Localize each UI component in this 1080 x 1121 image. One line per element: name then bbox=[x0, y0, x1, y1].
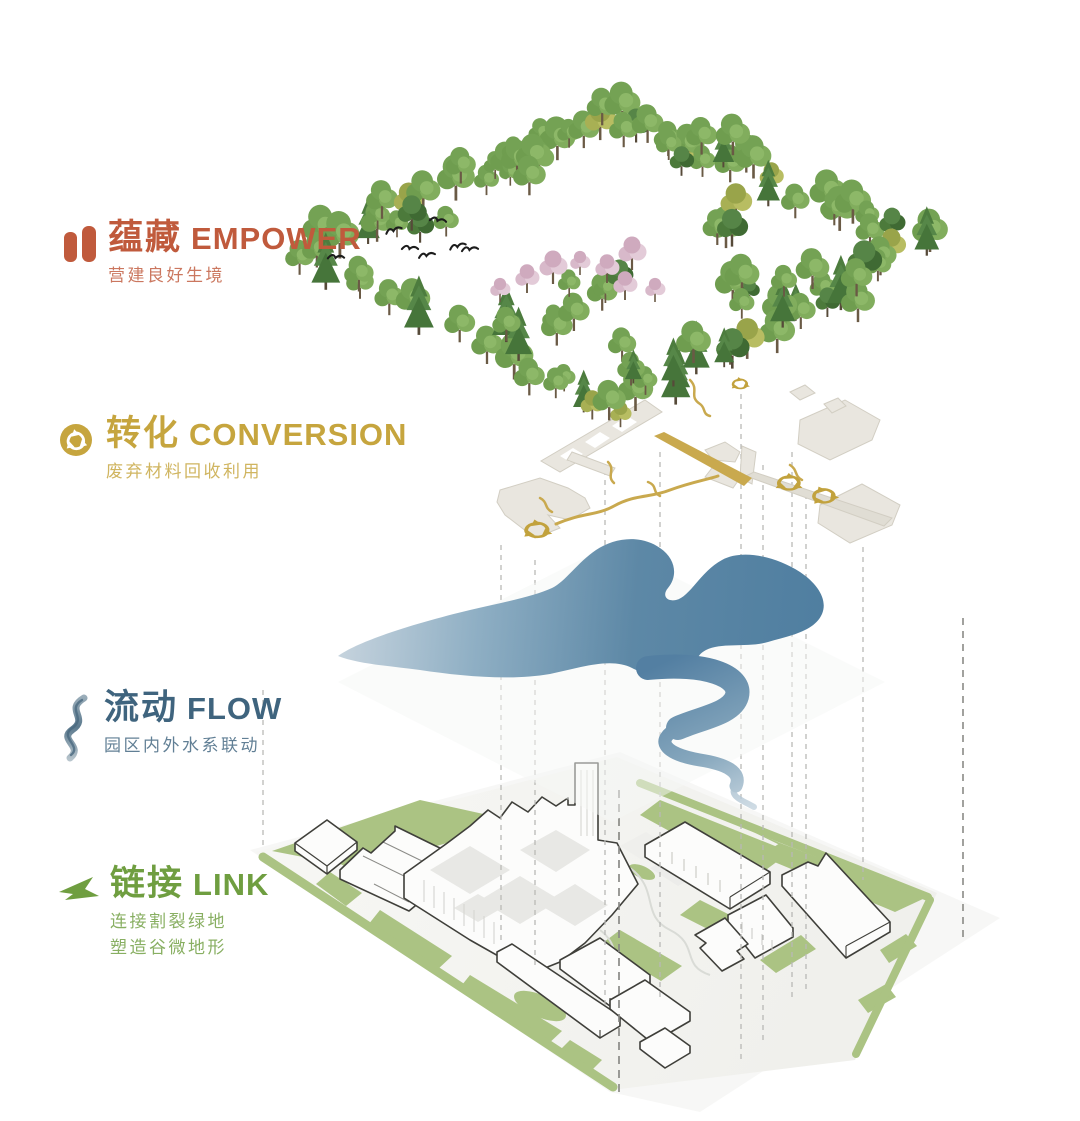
layer-title-en: LINK bbox=[193, 869, 269, 900]
stone-fragments bbox=[497, 385, 900, 543]
layer-subtitle: 废弃材料回收利用 bbox=[106, 459, 407, 485]
layer-title-en: FLOW bbox=[187, 693, 282, 724]
layer-title-en: CONVERSION bbox=[189, 419, 407, 450]
stream-icon bbox=[52, 694, 94, 762]
seeds-icon bbox=[64, 224, 98, 264]
layer-title: 流动 FLOW bbox=[104, 690, 282, 725]
layer-label-flow: 流动 FLOW 园区内外水系联动 bbox=[52, 690, 282, 762]
layer-title-en: EMPOWER bbox=[191, 223, 362, 254]
water-flow-layer bbox=[338, 539, 885, 822]
layer-title-zh: 流动 bbox=[104, 690, 178, 725]
habitat-trees-layer bbox=[285, 82, 948, 428]
gold-ramp-band bbox=[654, 432, 752, 486]
layer-title-zh: 链接 bbox=[110, 866, 184, 901]
layer-title-zh: 蕴藏 bbox=[108, 220, 182, 255]
materials-conversion-layer bbox=[497, 377, 900, 543]
exploded-axonometric-diagram: 蕴藏 EMPOWER 营建良好生境 转化 CONVERSION 废弃材料回收利用… bbox=[0, 0, 1080, 1121]
layer-label-link: 链接 LINK 连接割裂绿地 塑造谷微地形 bbox=[58, 866, 269, 962]
recycle-icon bbox=[56, 420, 96, 460]
layer-subtitle: 营建良好生境 bbox=[108, 263, 362, 289]
layer-subtitle: 连接割裂绿地 塑造谷微地形 bbox=[110, 909, 269, 962]
layer-title: 转化 CONVERSION bbox=[106, 416, 407, 451]
layer-subtitle-line2: 塑造谷微地形 bbox=[110, 938, 227, 957]
arrow-icon bbox=[58, 876, 100, 904]
layer-title: 蕴藏 EMPOWER bbox=[108, 220, 362, 255]
layer-label-conversion: 转化 CONVERSION 废弃材料回收利用 bbox=[56, 416, 407, 485]
layer-title: 链接 LINK bbox=[110, 866, 269, 901]
recycle-icon bbox=[729, 377, 752, 391]
layer-subtitle-line1: 连接割裂绿地 bbox=[110, 912, 227, 931]
layer-label-empower: 蕴藏 EMPOWER 营建良好生境 bbox=[64, 220, 362, 289]
layer-subtitle: 园区内外水系联动 bbox=[104, 733, 282, 759]
layer-title-zh: 转化 bbox=[106, 416, 180, 451]
